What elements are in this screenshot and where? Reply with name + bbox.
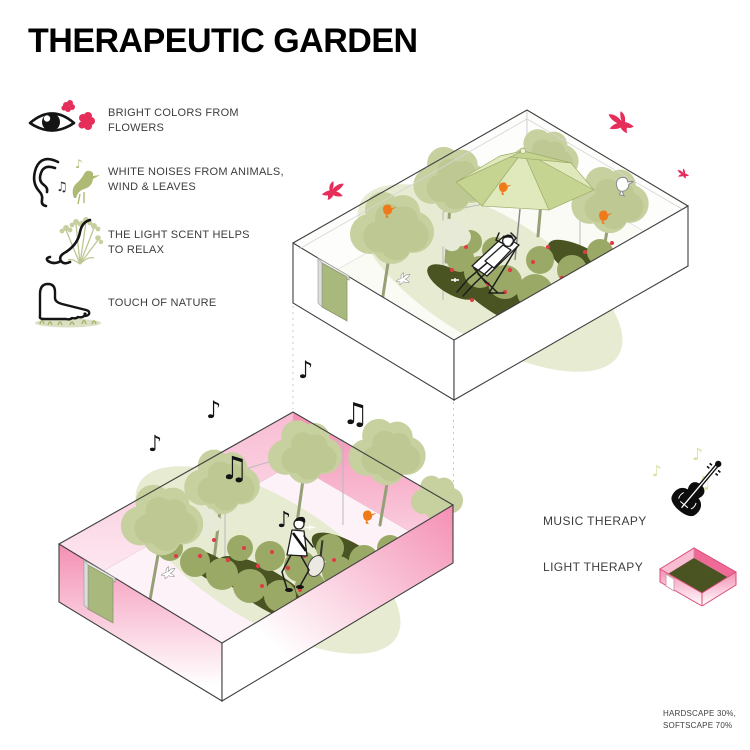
hardscape-softscape-note: HARDSCAPE 30%, SOFTSCAPE 70% [663,708,736,731]
violin-icon: ♪ ♪ ♫ [638,438,748,538]
pink-bird-icon [678,169,690,179]
nose-plant-icon [28,214,108,272]
eye-flowers-icon [28,96,108,154]
legend-text: TOUCH OF NATURE [108,274,216,332]
legend-item-sound: ♫ ♪ WHITE NOISES FROM ANIMALS,WIND & LEA… [28,154,284,212]
infographic-therapeutic-garden: THERAPEUTIC GARDEN BRIGHT COLORS FROMFLO… [0,0,750,750]
svg-text:♫: ♫ [56,180,68,195]
legend-text: BRIGHT COLORS FROMFLOWERS [108,96,239,154]
music-note-icon: ♫ [220,452,249,484]
music-note-icon: ♫ [342,400,369,430]
legend-text: WHITE NOISES FROM ANIMALS,WIND & LEAVES [108,154,284,212]
music-note-icon: ♪ [277,510,291,532]
pink-bird-icon [609,111,634,133]
legend-item-touch: TOUCH OF NATURE [28,274,216,332]
svg-text:♪: ♪ [652,462,662,480]
music-note-icon: ♪ [206,398,221,422]
music-garden-box [59,412,463,701]
legend-text: THE LIGHT SCENT HELPSTO RELAX [108,214,250,272]
music-note-icon: ♪ [148,434,162,456]
legend-item-sight: BRIGHT COLORS FROMFLOWERS [28,96,239,154]
light-box-icon [646,538,746,606]
svg-text:♪: ♪ [75,157,83,171]
page-title: THERAPEUTIC GARDEN [28,22,418,61]
green-bird-icon [73,171,100,204]
svg-text:♪: ♪ [692,445,703,465]
music-note-icon: ♪ [298,358,313,382]
pink-flower-icon [61,100,95,130]
legend-item-smell: THE LIGHT SCENT HELPSTO RELAX [28,214,250,272]
relax-garden-box [293,110,688,408]
music-therapy-label: MUSIC THERAPY [543,514,647,528]
light-therapy-label: LIGHT THERAPY [543,560,643,574]
foot-grass-icon [28,274,108,332]
ear-bird-icon: ♫ ♪ [28,154,108,212]
pink-bird-icon [322,181,344,200]
